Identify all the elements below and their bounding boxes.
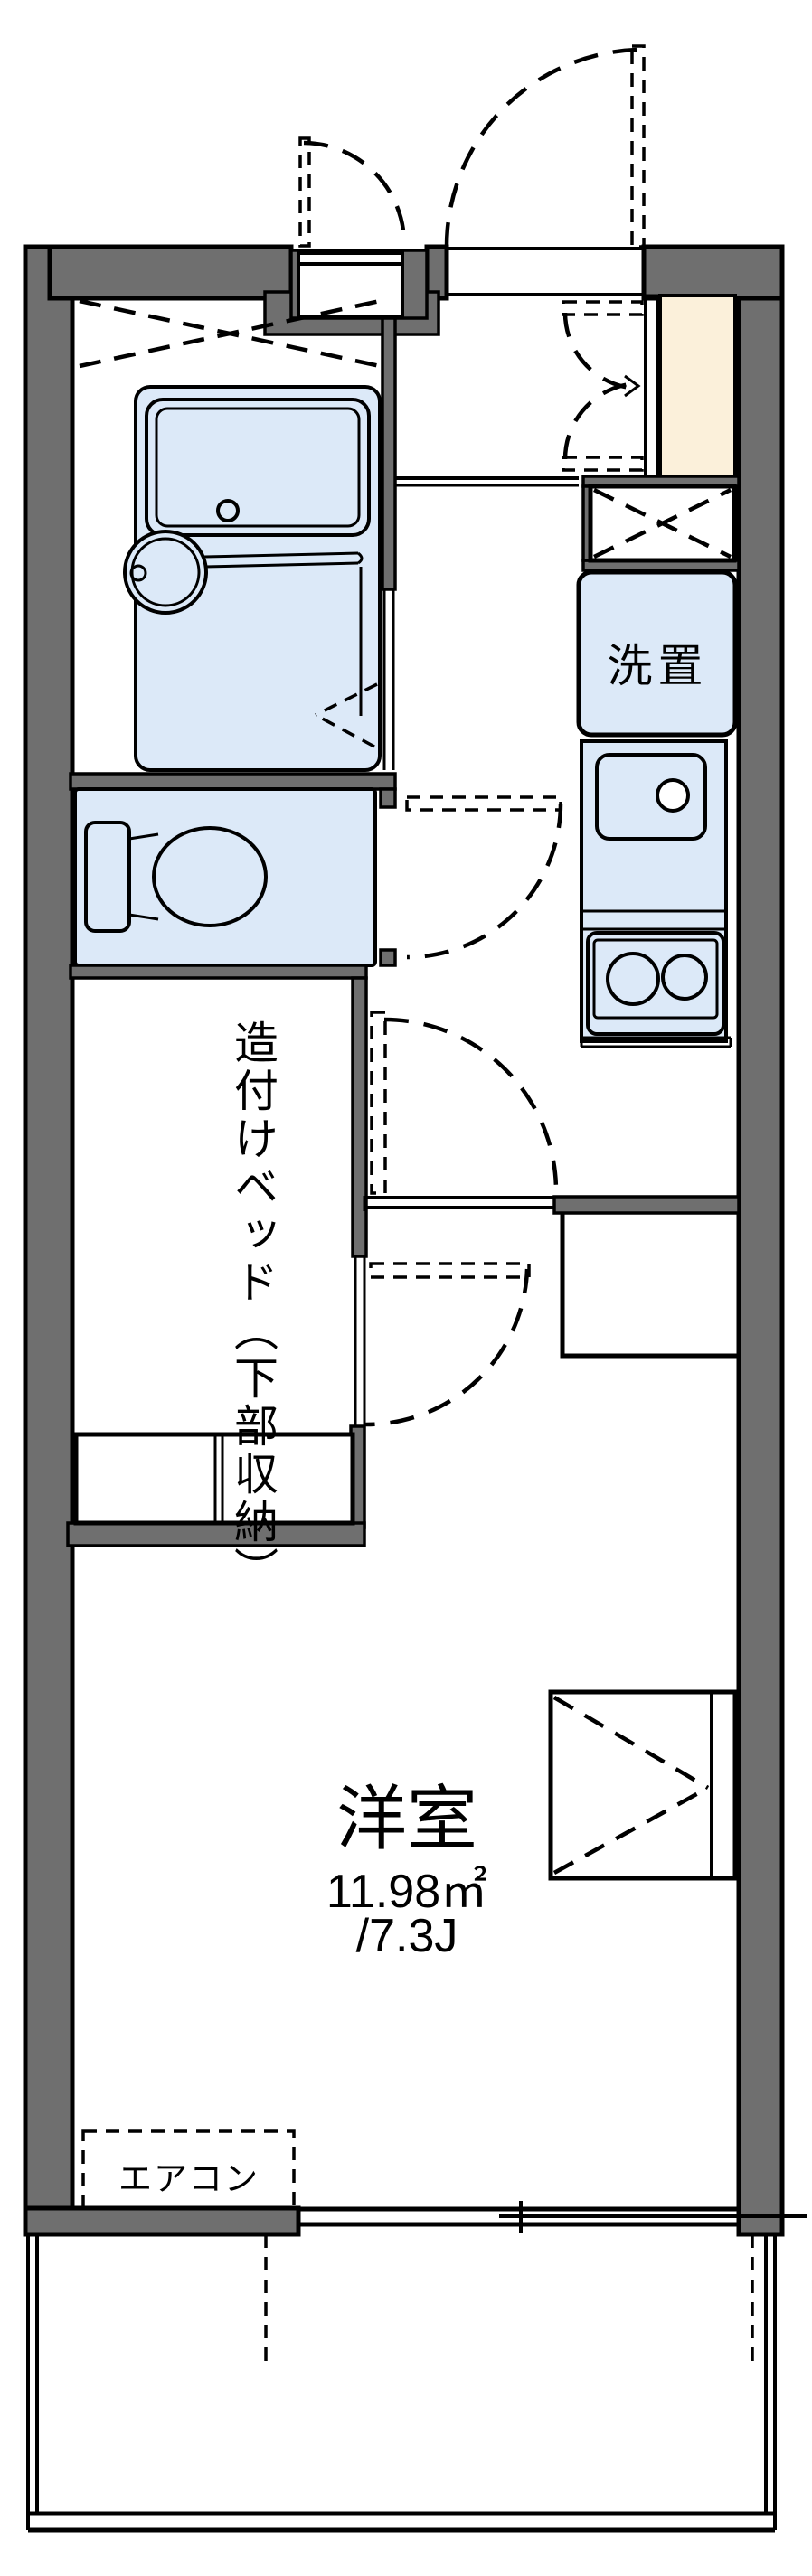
toilet-bowl <box>86 823 266 931</box>
toilet-room <box>75 789 395 965</box>
room-name-label: 洋室 <box>298 1763 515 1864</box>
room-tatami-label: /7.3J <box>289 1909 524 1963</box>
entrance-upper-shelf <box>583 476 739 570</box>
kitchen-side-box <box>562 1213 739 1356</box>
south-window <box>298 2201 807 2233</box>
floor-plan: 造付けベッド（下部収納） 洗置 洋室 11.98㎡ /7.3J エアコン <box>0 0 812 2576</box>
entrance-door <box>447 46 644 247</box>
kitchen-unit <box>581 741 731 1047</box>
toilet-bed-wall <box>71 965 366 978</box>
aircon-label: エアコン <box>86 2151 292 2200</box>
balcony <box>28 2234 775 2530</box>
bathroom <box>80 301 380 770</box>
meter-box-door <box>300 138 404 246</box>
shoe-cabinet <box>644 296 735 476</box>
built-in-bed-label: 造付けベッド（下部収納） <box>145 1020 279 1338</box>
bath-toilet-wall <box>71 774 395 789</box>
washer-label: 洗置 <box>583 630 732 695</box>
corridor-door <box>372 1012 556 1193</box>
bath-corridor-wall <box>382 318 395 589</box>
bed-storage-boxes <box>76 1434 353 1523</box>
closet <box>551 1692 735 1878</box>
shoe-cabinet-doors <box>563 302 642 470</box>
kitchen-faucet <box>657 780 688 811</box>
toilet-door <box>407 797 561 957</box>
room-door <box>364 1264 529 1424</box>
